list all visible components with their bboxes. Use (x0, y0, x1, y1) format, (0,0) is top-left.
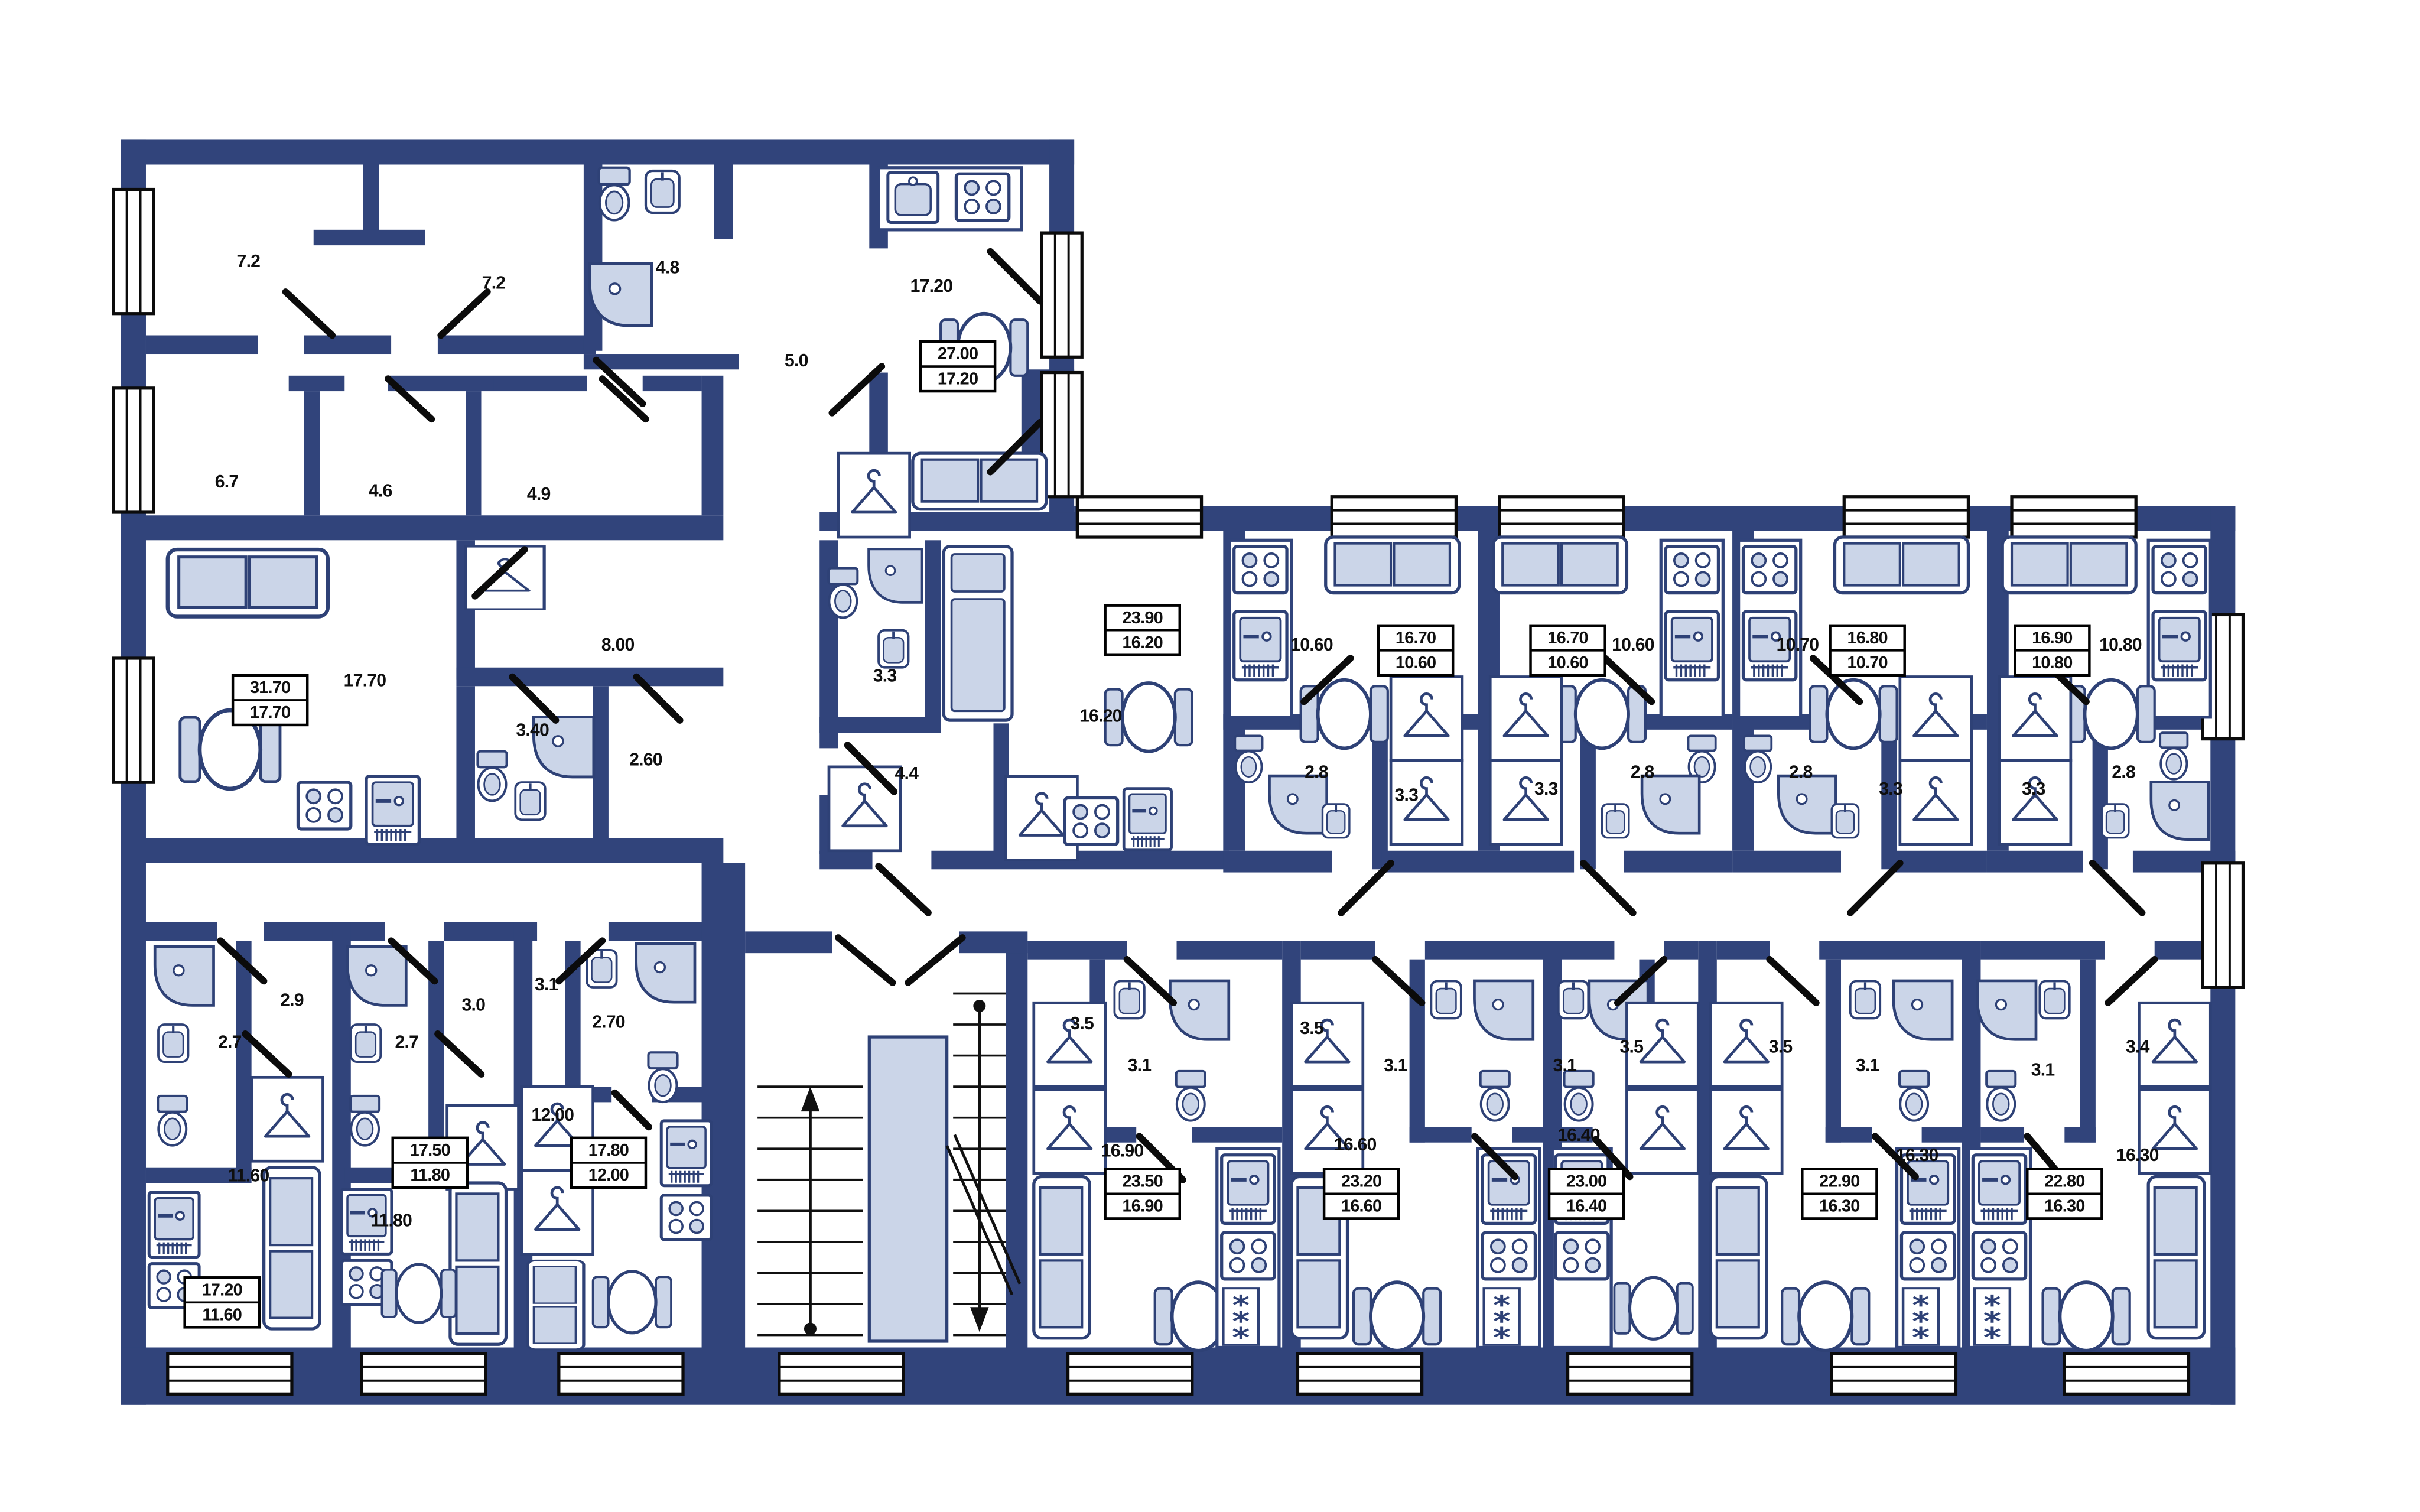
window-icon (1332, 497, 1456, 537)
sink-icon (1431, 981, 1461, 1018)
unit-total-area: 17.20 (202, 1280, 242, 1299)
sofa-icon (168, 549, 328, 616)
window-icon (2064, 1354, 2188, 1394)
room-area-label: 12.00 (532, 1105, 574, 1125)
room-area-label: 2.60 (629, 750, 662, 769)
room-area-label: 2.8 (1631, 762, 1654, 782)
unit-total-area: 23.50 (1123, 1172, 1163, 1191)
unit-area-box: 16.9010.80 (2015, 626, 2089, 675)
window-icon (1042, 233, 1082, 357)
shower-icon (869, 549, 922, 602)
unit-living-area: 16.60 (1341, 1197, 1381, 1216)
window-icon (1077, 497, 1201, 537)
unit-area-box: 31.7017.70 (233, 675, 307, 725)
window-icon (113, 388, 154, 512)
wardrobe-hanger-icon (1034, 1090, 1105, 1173)
unit-area-box: 17.5011.80 (393, 1138, 467, 1188)
stove-icon (1556, 1233, 1608, 1279)
vent-shaft-icon (1223, 1289, 1258, 1345)
window-icon (2203, 863, 2243, 987)
shower-icon (1778, 776, 1836, 833)
unit-total-area: 17.50 (410, 1141, 450, 1160)
dining-table-icon (2068, 680, 2155, 749)
sofa-icon (2002, 537, 2136, 593)
dining-table-icon (1559, 680, 1645, 749)
sink-icon (158, 1025, 188, 1062)
unit-living-area: 10.60 (1547, 653, 1588, 672)
window-icon (779, 1354, 903, 1394)
toilet-icon (2160, 733, 2187, 779)
unit-living-area: 17.70 (250, 703, 290, 722)
unit-area-box: 22.8016.30 (2027, 1169, 2102, 1218)
room-area-label: 3.3 (873, 666, 897, 685)
window-icon (113, 190, 154, 314)
unit-area-box: 23.2016.60 (1324, 1169, 1398, 1218)
vent-shaft-icon (1975, 1289, 2010, 1345)
unit-area-box: 23.9016.20 (1105, 606, 1180, 655)
room-area-label: 16.90 (1101, 1141, 1144, 1160)
shower-icon (1270, 776, 1327, 833)
shower-icon (1894, 981, 1952, 1039)
toilet-icon (1235, 736, 1262, 782)
room-area-label: 10.80 (2099, 635, 2142, 655)
room-area-label: 2.7 (218, 1032, 242, 1052)
sofa-icon (528, 1260, 584, 1349)
stove-icon (1065, 798, 1117, 844)
wardrobe-hanger-icon (1292, 1090, 1363, 1173)
sofa-icon (264, 1168, 320, 1329)
room-area-label: 2.8 (1789, 762, 1813, 782)
unit-living-area: 10.60 (1396, 653, 1436, 672)
stove-icon (1222, 1233, 1274, 1279)
sink-icon (879, 630, 908, 668)
room-area-label: 3.1 (1856, 1056, 1879, 1075)
room-area-label: 16.30 (1896, 1146, 1938, 1165)
room-area-label: 4.4 (895, 764, 919, 783)
unit-total-area: 22.90 (1819, 1172, 1859, 1191)
unit-total-area: 22.80 (2044, 1172, 2084, 1191)
sofa-icon (1034, 1177, 1090, 1338)
window-icon (362, 1354, 486, 1394)
shower-icon (2151, 782, 2208, 840)
room-area-label: 6.7 (215, 472, 239, 492)
room-area-label: 16.30 (2116, 1146, 2159, 1165)
bed-icon (944, 547, 1012, 720)
stove-icon (1234, 547, 1287, 593)
room-area-label: 2.70 (592, 1012, 625, 1032)
stove-icon (1901, 1233, 1954, 1279)
unit-area-box: 17.8012.00 (571, 1138, 646, 1188)
room-area-label: 5.0 (785, 351, 808, 370)
sink-icon (515, 782, 545, 820)
stove-icon (1666, 547, 1718, 593)
room-area-label: 4.6 (369, 482, 392, 501)
sink-icon (1559, 981, 1588, 1018)
toilet-icon (1744, 736, 1771, 782)
unit-area-box: 17.2011.60 (185, 1277, 259, 1327)
dining-table-icon (1782, 1282, 1869, 1351)
unit-living-area: 16.20 (1123, 633, 1163, 652)
toilet-icon (158, 1096, 187, 1146)
stove-icon (956, 174, 1009, 220)
room-area-label: 7.2 (237, 252, 261, 271)
sink-icon (1850, 981, 1880, 1018)
toilet-icon (1986, 1071, 2015, 1121)
unit-total-area: 16.80 (1847, 629, 1887, 648)
shower-icon (1170, 981, 1228, 1039)
dining-table-icon (1614, 1277, 1692, 1339)
window-icon (1500, 497, 1624, 537)
window-icon (1568, 1354, 1692, 1394)
sofa-icon (450, 1183, 506, 1344)
unit-area-box: 22.9016.30 (1802, 1169, 1876, 1218)
room-area-label: 3.3 (2022, 779, 2045, 799)
room-area-label: 10.60 (1612, 635, 1654, 655)
toilet-icon (828, 568, 857, 618)
wardrobe-hanger-icon (466, 547, 544, 609)
vent-shaft-icon (1484, 1289, 1520, 1345)
floor-plan-page: 7.27.24.85.017.206.74.64.917.708.003.402… (0, 0, 2420, 1512)
room-area-label: 2.7 (395, 1032, 419, 1052)
unit-living-area: 16.30 (1819, 1197, 1859, 1216)
room-area-label: 17.70 (344, 671, 386, 690)
stove-icon (1482, 1233, 1535, 1279)
shower-icon (636, 944, 695, 1002)
fridge-icon (661, 1121, 711, 1186)
room-area-label: 10.70 (1777, 635, 1819, 655)
wardrobe-hanger-icon (829, 767, 900, 851)
toilet-icon (1899, 1071, 1928, 1121)
wardrobe-hanger-icon (1999, 760, 2071, 844)
stair-flight-left (757, 1087, 863, 1335)
unit-living-area: 11.60 (202, 1306, 242, 1325)
unit-area-box: 27.0017.20 (920, 342, 995, 391)
room-area-label: 3.1 (2031, 1061, 2055, 1080)
window-icon (2012, 497, 2136, 537)
wardrobe-hanger-icon (1710, 1090, 1782, 1173)
room-area-label: 3.5 (1769, 1037, 1793, 1056)
sink-icon (1602, 804, 1628, 838)
window-icon (559, 1354, 683, 1394)
toilet-icon (350, 1096, 379, 1146)
window-icon (113, 658, 154, 782)
wardrobe-hanger-icon (838, 453, 910, 537)
room-area-label: 3.5 (1300, 1019, 1323, 1038)
fridge-icon (1666, 612, 1718, 680)
room-area-label: 2.9 (280, 990, 304, 1010)
wardrobe-hanger-icon (1627, 1090, 1698, 1173)
wardrobe-hanger-icon (1999, 677, 2071, 761)
sofa-icon (1493, 537, 1627, 593)
unit-area-box: 16.7010.60 (1378, 626, 1453, 675)
stairwell (757, 993, 1020, 1341)
room-area-label: 3.40 (516, 720, 549, 740)
toilet-icon (599, 168, 630, 220)
window-icon (168, 1354, 292, 1394)
wardrobe-hanger-icon (1900, 677, 1972, 761)
wardrobe-hanger-icon (1034, 1003, 1105, 1087)
sofa-icon (2148, 1177, 2204, 1338)
room-area-label: 11.80 (370, 1211, 412, 1231)
shower-icon (1642, 776, 1699, 833)
sofa-icon (1710, 1177, 1767, 1338)
window-icon (1068, 1354, 1192, 1394)
dining-table-icon (593, 1272, 671, 1333)
unit-living-area: 12.00 (588, 1166, 629, 1185)
room-area-label: 3.3 (1879, 779, 1902, 799)
fridge-icon (1482, 1155, 1535, 1224)
wardrobe-hanger-icon (1292, 1003, 1363, 1087)
toilet-icon (1564, 1071, 1593, 1121)
unit-total-area: 27.00 (938, 344, 978, 363)
room-area-label: 2.8 (1305, 762, 1328, 782)
stove-icon (298, 782, 350, 829)
toilet-icon (1176, 1071, 1205, 1121)
fridge-icon (1234, 612, 1287, 680)
window-icon (1297, 1354, 1422, 1394)
toilet-icon (648, 1052, 677, 1102)
unit-total-area: 23.20 (1341, 1172, 1381, 1191)
unit-total-area: 17.80 (588, 1141, 629, 1160)
shower-icon (1474, 981, 1533, 1039)
unit-living-area: 16.40 (1566, 1197, 1606, 1216)
fridge-icon (2153, 612, 2206, 680)
room-area-label: 3.4 (2126, 1037, 2150, 1056)
window-icon (1832, 1354, 1956, 1394)
toilet-icon (1481, 1071, 1510, 1121)
wardrobe-hanger-icon (1490, 677, 1562, 761)
room-area-label: 3.1 (1553, 1056, 1577, 1075)
sink-icon (351, 1025, 380, 1062)
stove-icon (2153, 547, 2206, 593)
unit-total-area: 23.00 (1566, 1172, 1606, 1191)
toilet-icon (477, 752, 506, 801)
room-area-label: 3.5 (1070, 1014, 1094, 1033)
sink-icon (1114, 981, 1144, 1018)
shower-icon (155, 947, 213, 1005)
room-area-label: 8.00 (601, 635, 635, 655)
sofa-icon (1326, 537, 1459, 593)
elevator-shaft (869, 1037, 946, 1341)
stove-icon (1743, 547, 1796, 593)
unit-area-box: 23.5016.90 (1105, 1169, 1180, 1218)
unit-living-area: 17.20 (938, 369, 978, 388)
fridge-icon (1222, 1155, 1274, 1224)
unit-living-area: 10.70 (1847, 653, 1887, 672)
room-area-label: 3.3 (1534, 779, 1558, 799)
room-area-label: 3.0 (462, 995, 486, 1014)
kitchen-sink-icon (888, 173, 938, 223)
room-area-label: 10.60 (1290, 635, 1333, 655)
room-area-label: 17.20 (910, 277, 953, 296)
sink-icon (2102, 804, 2128, 838)
wardrobe-hanger-icon (252, 1077, 323, 1161)
room-area-label: 3.1 (1128, 1056, 1152, 1075)
dining-table-icon (1810, 680, 1897, 749)
shower-icon (347, 947, 406, 1005)
wardrobe-hanger-icon (1391, 677, 1462, 761)
fridge-icon (1973, 1155, 2025, 1224)
room-area-label: 3.5 (1620, 1037, 1644, 1056)
unit-area-box: 23.0016.40 (1549, 1169, 1624, 1218)
dining-table-icon (2043, 1282, 2130, 1351)
room-area-label: 4.9 (527, 485, 551, 504)
fridge-icon (1124, 789, 1171, 850)
sink-icon (1832, 804, 1858, 838)
room-area-label: 7.2 (482, 274, 506, 293)
sink-icon (1322, 804, 1349, 838)
unit-area-box: 16.7010.60 (1531, 626, 1605, 675)
sink-icon (646, 171, 679, 213)
wardrobe-hanger-icon (1900, 760, 1972, 844)
unit-living-area: 10.80 (2032, 653, 2072, 672)
room-area-label: 3.1 (535, 975, 558, 994)
room-area-label: 4.8 (656, 258, 679, 277)
stove-icon (1973, 1233, 2025, 1279)
unit-total-area: 16.70 (1547, 629, 1588, 648)
room-area-label: 3.3 (1395, 786, 1419, 805)
shower-icon (1977, 981, 2036, 1039)
unit-living-area: 16.90 (1123, 1197, 1163, 1216)
sofa-icon (1834, 537, 1968, 593)
window-icon (1844, 497, 1968, 537)
unit-area-box: 16.8010.70 (1830, 626, 1905, 675)
room-area-label: 2.8 (2112, 762, 2135, 782)
room-area-label: 16.20 (1079, 707, 1122, 726)
room-area-label: 16.60 (1334, 1135, 1377, 1155)
unit-total-area: 16.90 (2032, 629, 2072, 648)
unit-total-area: 23.90 (1123, 609, 1163, 627)
dining-table-icon (1354, 1282, 1440, 1351)
floor-plan-canvas: 7.27.24.85.017.206.74.64.917.708.003.402… (0, 0, 2420, 1512)
room-area-label: 11.60 (227, 1166, 269, 1185)
unit-total-area: 16.70 (1396, 629, 1436, 648)
sink-icon (2040, 981, 2069, 1018)
fridge-icon (149, 1192, 199, 1257)
wardrobe-hanger-icon (2139, 1003, 2210, 1087)
dining-table-icon (382, 1264, 456, 1322)
unit-living-area: 16.30 (2044, 1197, 2084, 1216)
unit-living-area: 11.80 (410, 1166, 450, 1185)
room-area-label: 16.40 (1557, 1126, 1600, 1145)
fridge-icon (366, 776, 419, 845)
vent-shaft-icon (1903, 1289, 1938, 1345)
room-area-label: 3.1 (1384, 1056, 1407, 1075)
wardrobe-hanger-icon (1490, 760, 1562, 844)
stove-icon (661, 1195, 711, 1240)
sofa-icon (913, 453, 1046, 509)
unit-total-area: 31.70 (250, 678, 290, 697)
